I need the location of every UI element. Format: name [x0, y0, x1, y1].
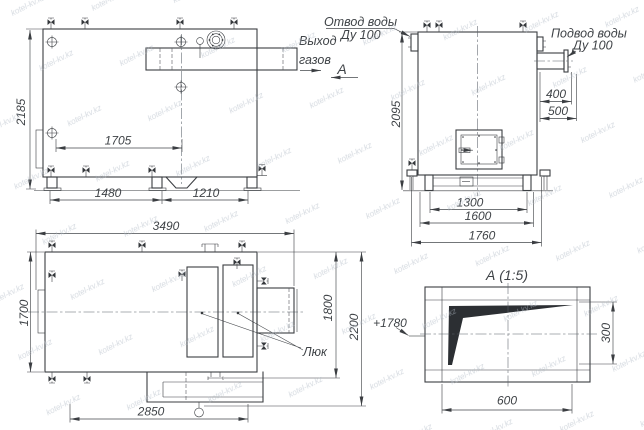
technical-drawing-canvas: kotel-kv.kz kotel-kv.kz 21	[0, 0, 644, 430]
watermark-overlay	[0, 0, 644, 430]
boiler-drawing: kotel-kv.kz kotel-kv.kz 21	[0, 0, 644, 430]
